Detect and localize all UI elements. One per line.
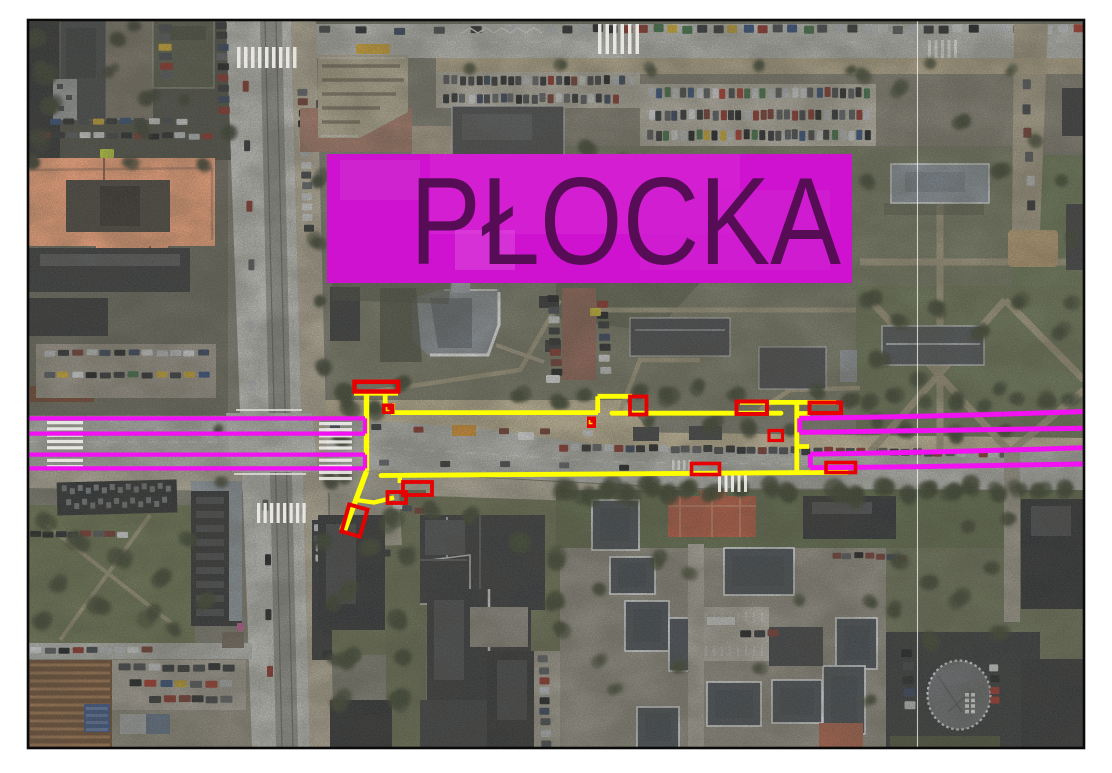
svg-text:PŁOCKA: PŁOCKA (410, 152, 841, 291)
